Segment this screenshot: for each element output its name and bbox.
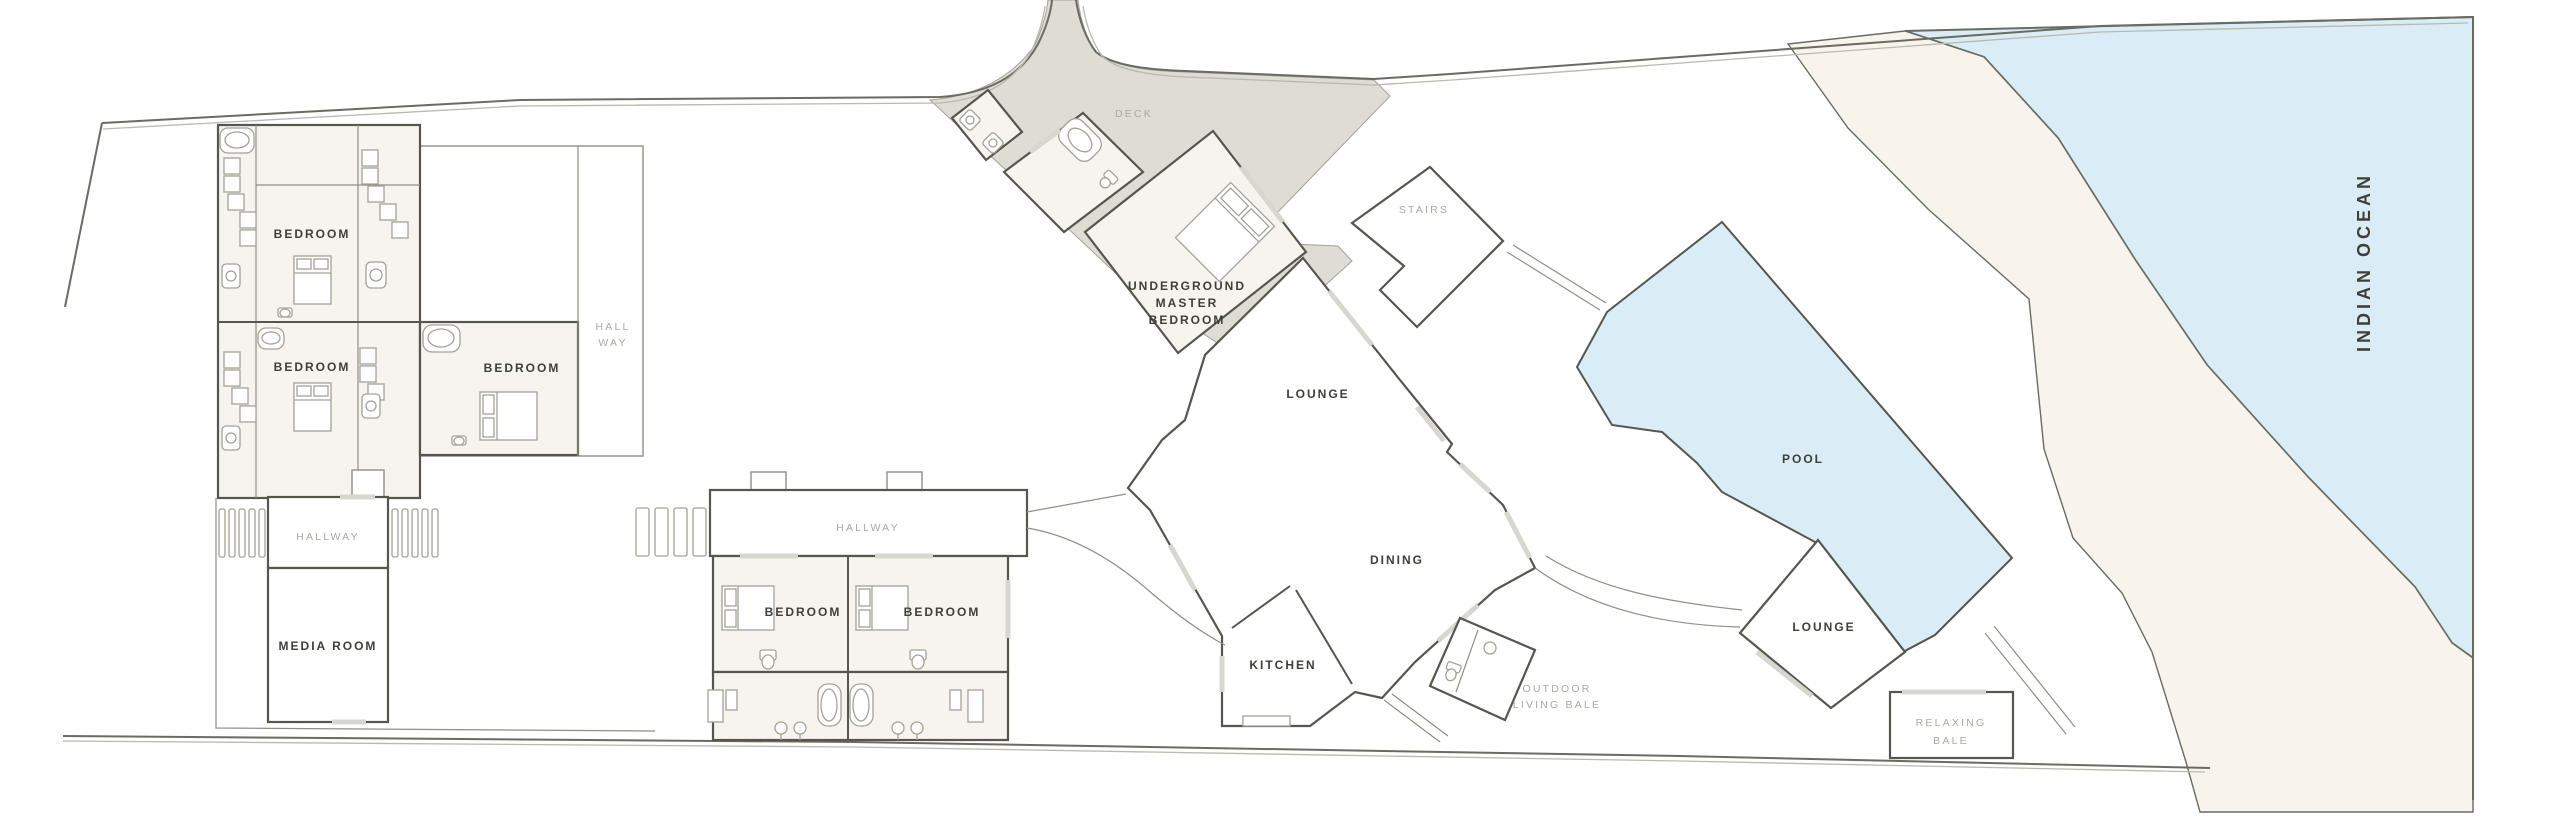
sink-icon (1484, 642, 1496, 654)
louver-screen-icon (636, 508, 706, 556)
entry-step (352, 470, 384, 497)
entry-step (751, 472, 786, 490)
outdoor-living-bale-label-line1: OUTDOOR (1522, 683, 1591, 695)
underground-master-label-line2: MASTER (1156, 296, 1219, 310)
sink-icon (258, 328, 284, 349)
sink-icon (362, 394, 380, 418)
hall-way-label-line1: HALL (595, 321, 630, 333)
toilet-icon (278, 308, 292, 317)
sink-icon (222, 264, 240, 288)
dining-exit-path (1384, 694, 1448, 742)
deck-label: DECK (1115, 108, 1153, 120)
walkway-line (1027, 494, 1126, 512)
indian-ocean-label: INDIAN OCEAN (2354, 172, 2374, 352)
stairs-walkway (1507, 252, 1600, 310)
pool-label: POOL (1782, 452, 1824, 466)
stairs-room (1352, 167, 1503, 327)
bathtub-icon (220, 128, 254, 153)
stairs-label: STAIRS (1399, 204, 1449, 216)
site-boundary-top-left-inner (103, 6, 1045, 129)
site-boundary-bottom-inner (63, 741, 2205, 772)
site-boundary-top-left (102, 0, 1052, 123)
bed-icon (480, 392, 537, 440)
toilet-icon (760, 650, 776, 669)
toilet-icon (452, 436, 466, 445)
hall-way-label-line2: WAY (598, 337, 627, 349)
louver-screen-icon (219, 509, 265, 557)
site-boundary-left (65, 123, 102, 307)
colonnade-curve (1546, 556, 1742, 610)
stairs-walkway (1513, 245, 1606, 303)
floor-plan-canvas: BEDROOM BEDROOM BEDROOM HALL WAY HALLWAY… (0, 0, 2560, 817)
media-room-label: MEDIA ROOM (279, 639, 378, 653)
bed-icon (856, 586, 908, 630)
sink-icon (222, 426, 240, 450)
dining-label: DINING (1370, 553, 1424, 567)
outdoor-living-bale-label-line2: LIVING BALE (1513, 699, 1601, 711)
bed-icon (294, 383, 331, 431)
bedroom-label-3: BEDROOM (484, 361, 561, 375)
underground-master-label-line3: BEDROOM (1149, 313, 1226, 327)
louver-screen-icon (392, 509, 438, 557)
bedroom-label-2: BEDROOM (274, 360, 351, 374)
bedroom-wing-block (218, 125, 420, 498)
kitchen-label: KITCHEN (1249, 658, 1316, 672)
hallway-label-south: HALLWAY (836, 522, 900, 534)
bathtub-icon (818, 684, 841, 726)
underground-master-label-line1: UNDERGROUND (1128, 279, 1246, 293)
relaxing-bale-label-line1: RELAXING (1916, 717, 1987, 729)
pool-lounge-label: LOUNGE (1792, 620, 1855, 634)
kitchen-counter-icon (1243, 716, 1290, 726)
hallway-label-media: HALLWAY (296, 531, 360, 543)
lounge-label: LOUNGE (1286, 387, 1349, 401)
entry-step (887, 472, 922, 490)
bed-icon (294, 256, 331, 304)
bedroom-label-1: BEDROOM (274, 227, 351, 241)
colonnade-curve (1535, 568, 1740, 627)
bedroom-label-4: BEDROOM (765, 605, 842, 619)
toilet-icon (910, 650, 926, 669)
bedroom-label-5: BEDROOM (904, 605, 981, 619)
toilet-icon (366, 262, 386, 288)
bathtub-icon (423, 325, 460, 352)
relaxing-bale-label-line2: BALE (1933, 735, 1969, 747)
bathtub-icon (850, 684, 873, 726)
